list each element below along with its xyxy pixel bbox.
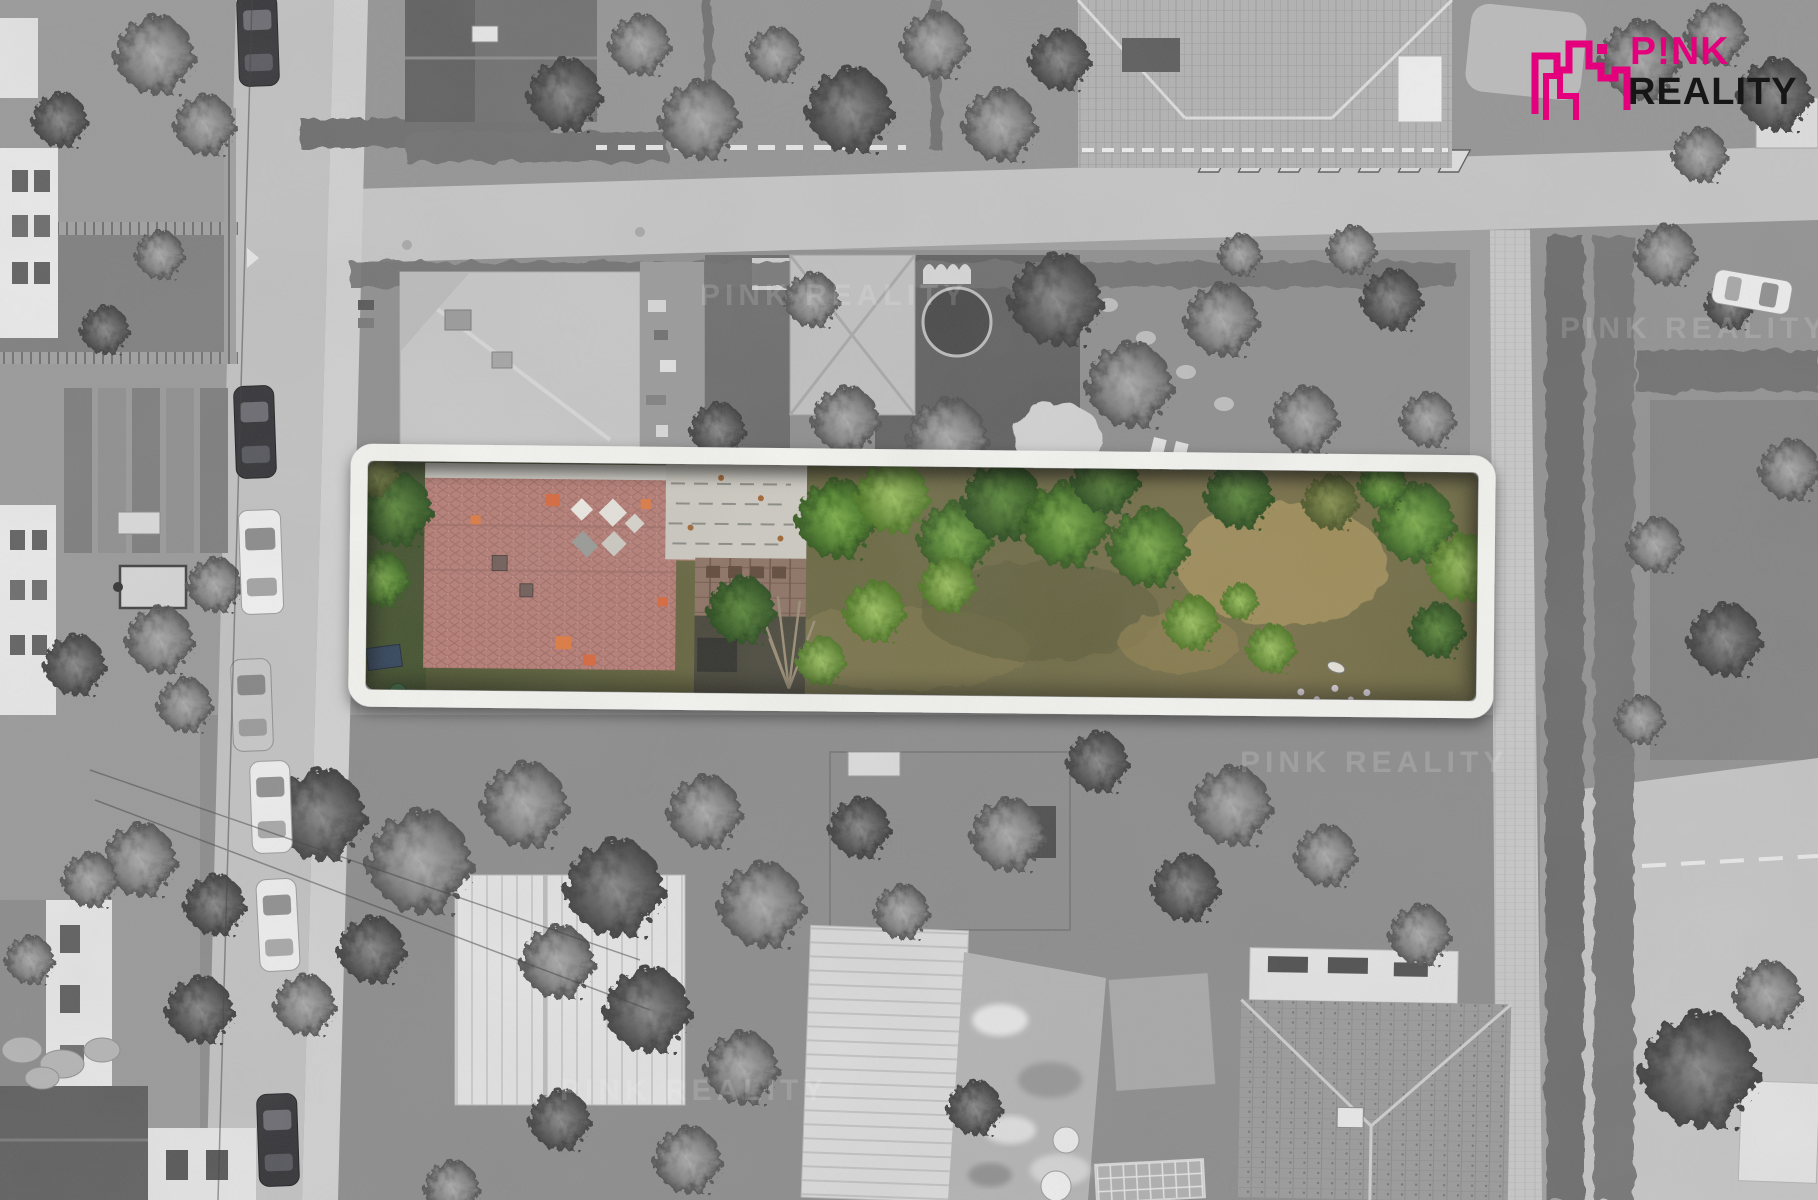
film-grain-overlay [0, 0, 1818, 1200]
brand-name-top: P!NK [1630, 30, 1729, 73]
aerial-photo: PINK REALITY PINK REALITY PINK REALITY P… [0, 0, 1818, 1200]
real-estate-aerial-photo: PINK REALITY PINK REALITY PINK REALITY P… [0, 0, 1818, 1200]
brand-name-bottom: REALITY [1628, 71, 1798, 113]
